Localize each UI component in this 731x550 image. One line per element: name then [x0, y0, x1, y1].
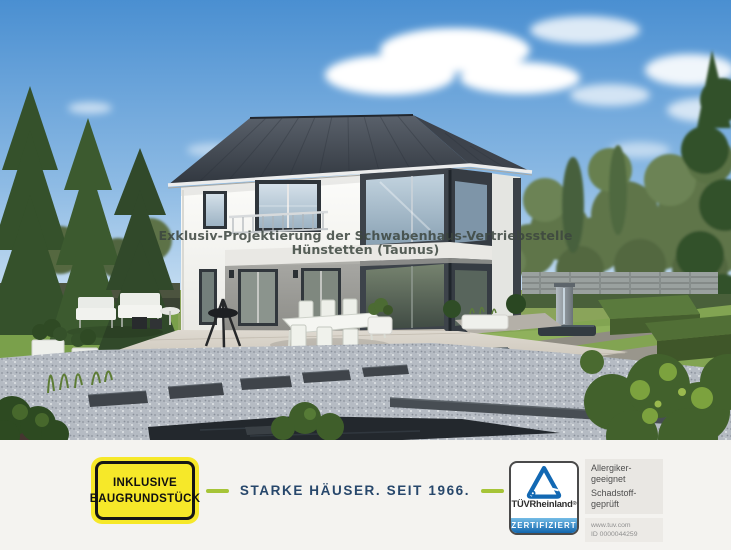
wall-lamp	[229, 270, 234, 278]
tuv-meta: www.tuv.com ID 0000044259	[585, 518, 663, 542]
footer-banner: INKLUSIVE BAUGRUNDSTÜCK STARKE HÄUSER. S…	[0, 440, 731, 550]
badge-line-2: BAUGRUNDSTÜCK	[90, 491, 201, 507]
tuv-rheinland-logo: TÜVRheinland® ZERTIFIZIERT	[509, 461, 579, 535]
badge-frame: INKLUSIVE BAUGRUNDSTÜCK	[95, 461, 195, 520]
cert-line: Allergiker-	[591, 463, 657, 474]
wall-lamp	[293, 270, 298, 278]
tuv-url: www.tuv.com	[591, 521, 657, 530]
real-estate-ad: Exklusiv-Projektierung der Schwabenhaus-…	[0, 0, 731, 550]
badge-line-1: INKLUSIVE	[113, 475, 177, 491]
tuv-brand-rest: Rheinland	[530, 499, 573, 509]
cert-claims: Allergiker- geeignet Schadstoff- geprüft	[585, 459, 663, 514]
cert-line: Schadstoff-	[591, 488, 657, 499]
tuv-certification-texts: Allergiker- geeignet Schadstoff- geprüft…	[585, 459, 663, 542]
tuv-brand-text: TÜVRheinland®	[512, 499, 577, 509]
registered-mark: ®	[573, 501, 577, 507]
tuv-certified-bar: ZERTIFIZIERT	[511, 518, 577, 533]
divider-dash-right	[481, 489, 504, 493]
watermark: Exklusiv-Projektierung der Schwabenhaus-…	[0, 229, 731, 257]
inclusive-plot-badge: INKLUSIVE BAUGRUNDSTÜCK	[91, 457, 199, 524]
tuv-triangle-icon	[524, 465, 564, 499]
house-photo: Exklusiv-Projektierung der Schwabenhaus-…	[0, 0, 731, 440]
cert-line: geeignet	[591, 474, 657, 485]
watermark-line-2: Hünstetten (Taunus)	[0, 243, 731, 257]
tuv-brand-bold: TÜV	[512, 499, 530, 509]
cert-line: geprüft	[591, 499, 657, 510]
watermark-line-1: Exklusiv-Projektierung der Schwabenhaus-…	[0, 229, 731, 243]
slogan-text: STARKE HÄUSER. SEIT 1966.	[231, 483, 479, 498]
tuv-id: ID 0000044259	[591, 530, 657, 539]
house-illustration	[0, 0, 731, 440]
divider-dash-left	[206, 489, 229, 493]
